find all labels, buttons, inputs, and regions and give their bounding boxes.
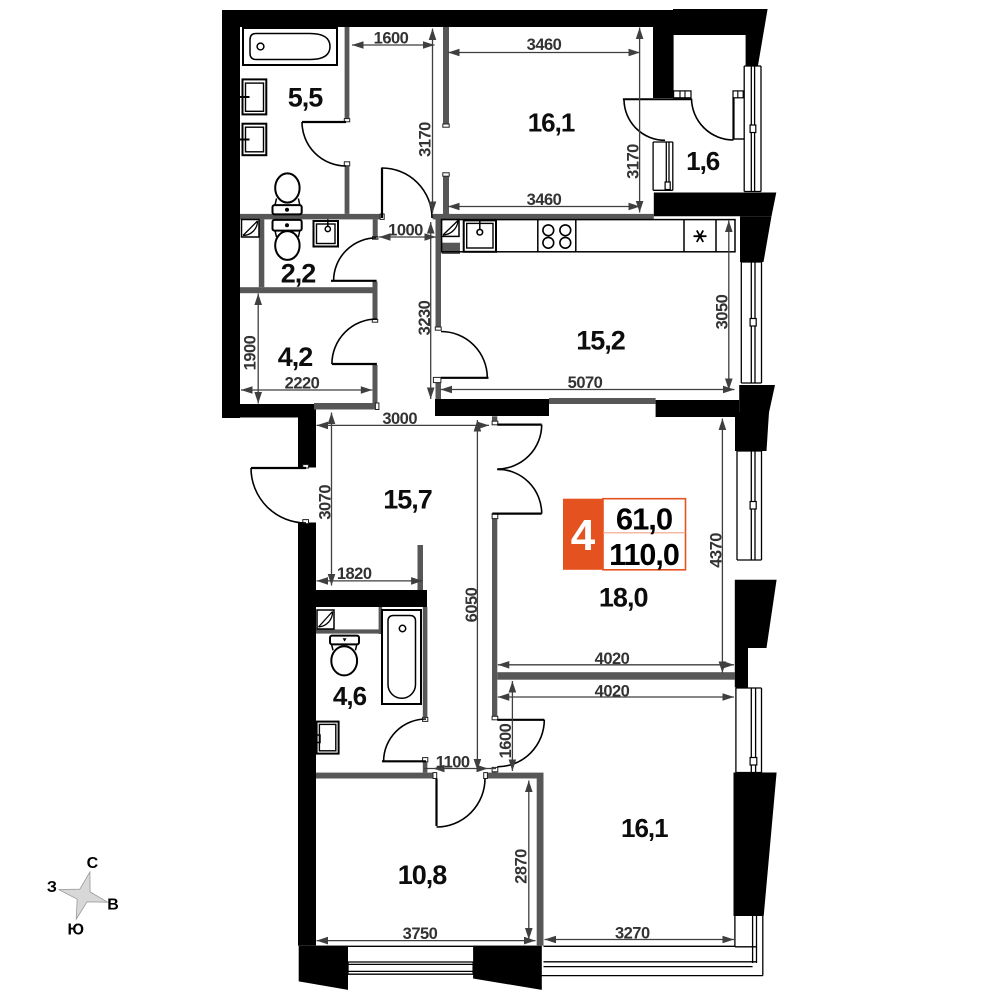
svg-text:5070: 5070 — [568, 374, 603, 392]
svg-text:3170: 3170 — [416, 122, 434, 157]
svg-text:В: В — [107, 897, 119, 914]
svg-text:1100: 1100 — [436, 753, 470, 771]
svg-text:3460: 3460 — [527, 191, 562, 209]
svg-text:1900: 1900 — [242, 335, 260, 370]
svg-text:3070: 3070 — [317, 485, 335, 520]
svg-text:2,2: 2,2 — [281, 259, 316, 289]
svg-text:4370: 4370 — [708, 533, 726, 568]
svg-text:3750: 3750 — [403, 925, 438, 943]
svg-text:1000: 1000 — [388, 222, 423, 240]
svg-text:4: 4 — [571, 511, 596, 560]
svg-text:4,2: 4,2 — [278, 342, 313, 372]
svg-text:15,7: 15,7 — [383, 485, 432, 515]
svg-text:4,6: 4,6 — [333, 681, 367, 711]
svg-text:3170: 3170 — [625, 144, 643, 179]
svg-text:3230: 3230 — [416, 300, 434, 335]
svg-text:2220: 2220 — [285, 374, 320, 392]
svg-text:С: С — [87, 855, 99, 872]
svg-text:1600: 1600 — [497, 723, 515, 758]
svg-text:3050: 3050 — [714, 294, 732, 329]
svg-text:4020: 4020 — [595, 682, 630, 700]
svg-text:1820: 1820 — [337, 565, 372, 583]
svg-text:15,2: 15,2 — [576, 325, 625, 355]
svg-text:3000: 3000 — [382, 410, 417, 428]
svg-text:5,5: 5,5 — [288, 83, 324, 113]
svg-text:10,8: 10,8 — [398, 860, 448, 890]
svg-text:3270: 3270 — [615, 924, 650, 942]
svg-text:4020: 4020 — [595, 650, 630, 668]
svg-text:61,0: 61,0 — [616, 501, 672, 536]
svg-text:2870: 2870 — [513, 849, 531, 884]
svg-text:3460: 3460 — [527, 36, 562, 54]
svg-text:З: З — [47, 879, 57, 896]
svg-text:110,0: 110,0 — [609, 538, 679, 572]
svg-text:18,0: 18,0 — [599, 583, 648, 613]
svg-text:Ю: Ю — [67, 921, 84, 938]
svg-text:1600: 1600 — [374, 29, 409, 47]
svg-text:16,1: 16,1 — [621, 813, 668, 843]
svg-text:16,1: 16,1 — [528, 107, 575, 137]
svg-text:1,6: 1,6 — [686, 146, 720, 176]
svg-text:6050: 6050 — [463, 587, 481, 622]
